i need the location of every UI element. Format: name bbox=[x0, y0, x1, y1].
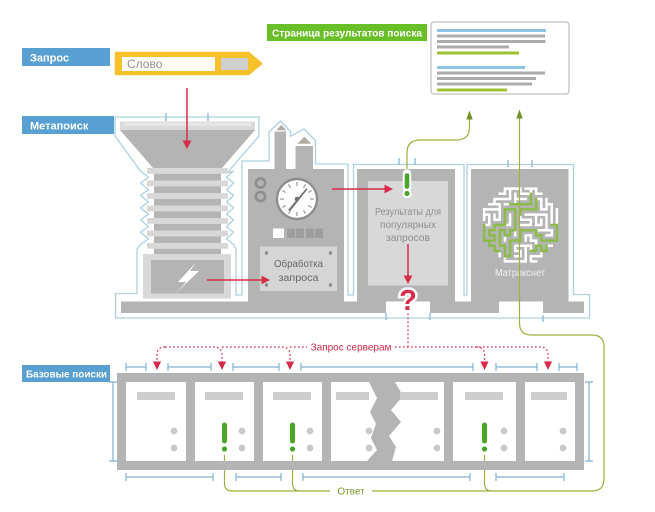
svg-text:Запрос: Запрос bbox=[30, 53, 69, 65]
svg-text:Обработка: Обработка bbox=[274, 258, 323, 270]
svg-text:Матрикснет: Матрикснет bbox=[495, 268, 545, 279]
svg-text:Базовые поиски: Базовые поиски bbox=[26, 369, 107, 381]
svg-text:?: ? bbox=[399, 285, 417, 317]
svg-text:запроса: запроса bbox=[279, 272, 319, 284]
svg-text:популярных: популярных bbox=[380, 220, 436, 231]
svg-text:Запрос серверам: Запрос серверам bbox=[311, 343, 392, 354]
svg-text:Слово: Слово bbox=[127, 57, 163, 71]
svg-text:Страница результатов поиска: Страница результатов поиска bbox=[272, 28, 422, 40]
svg-text:Результаты для: Результаты для bbox=[375, 207, 441, 218]
svg-text:запросов: запросов bbox=[386, 233, 430, 244]
svg-text:Метапоиск: Метапоиск bbox=[30, 121, 89, 133]
svg-text:Ответ: Ответ bbox=[337, 487, 365, 498]
